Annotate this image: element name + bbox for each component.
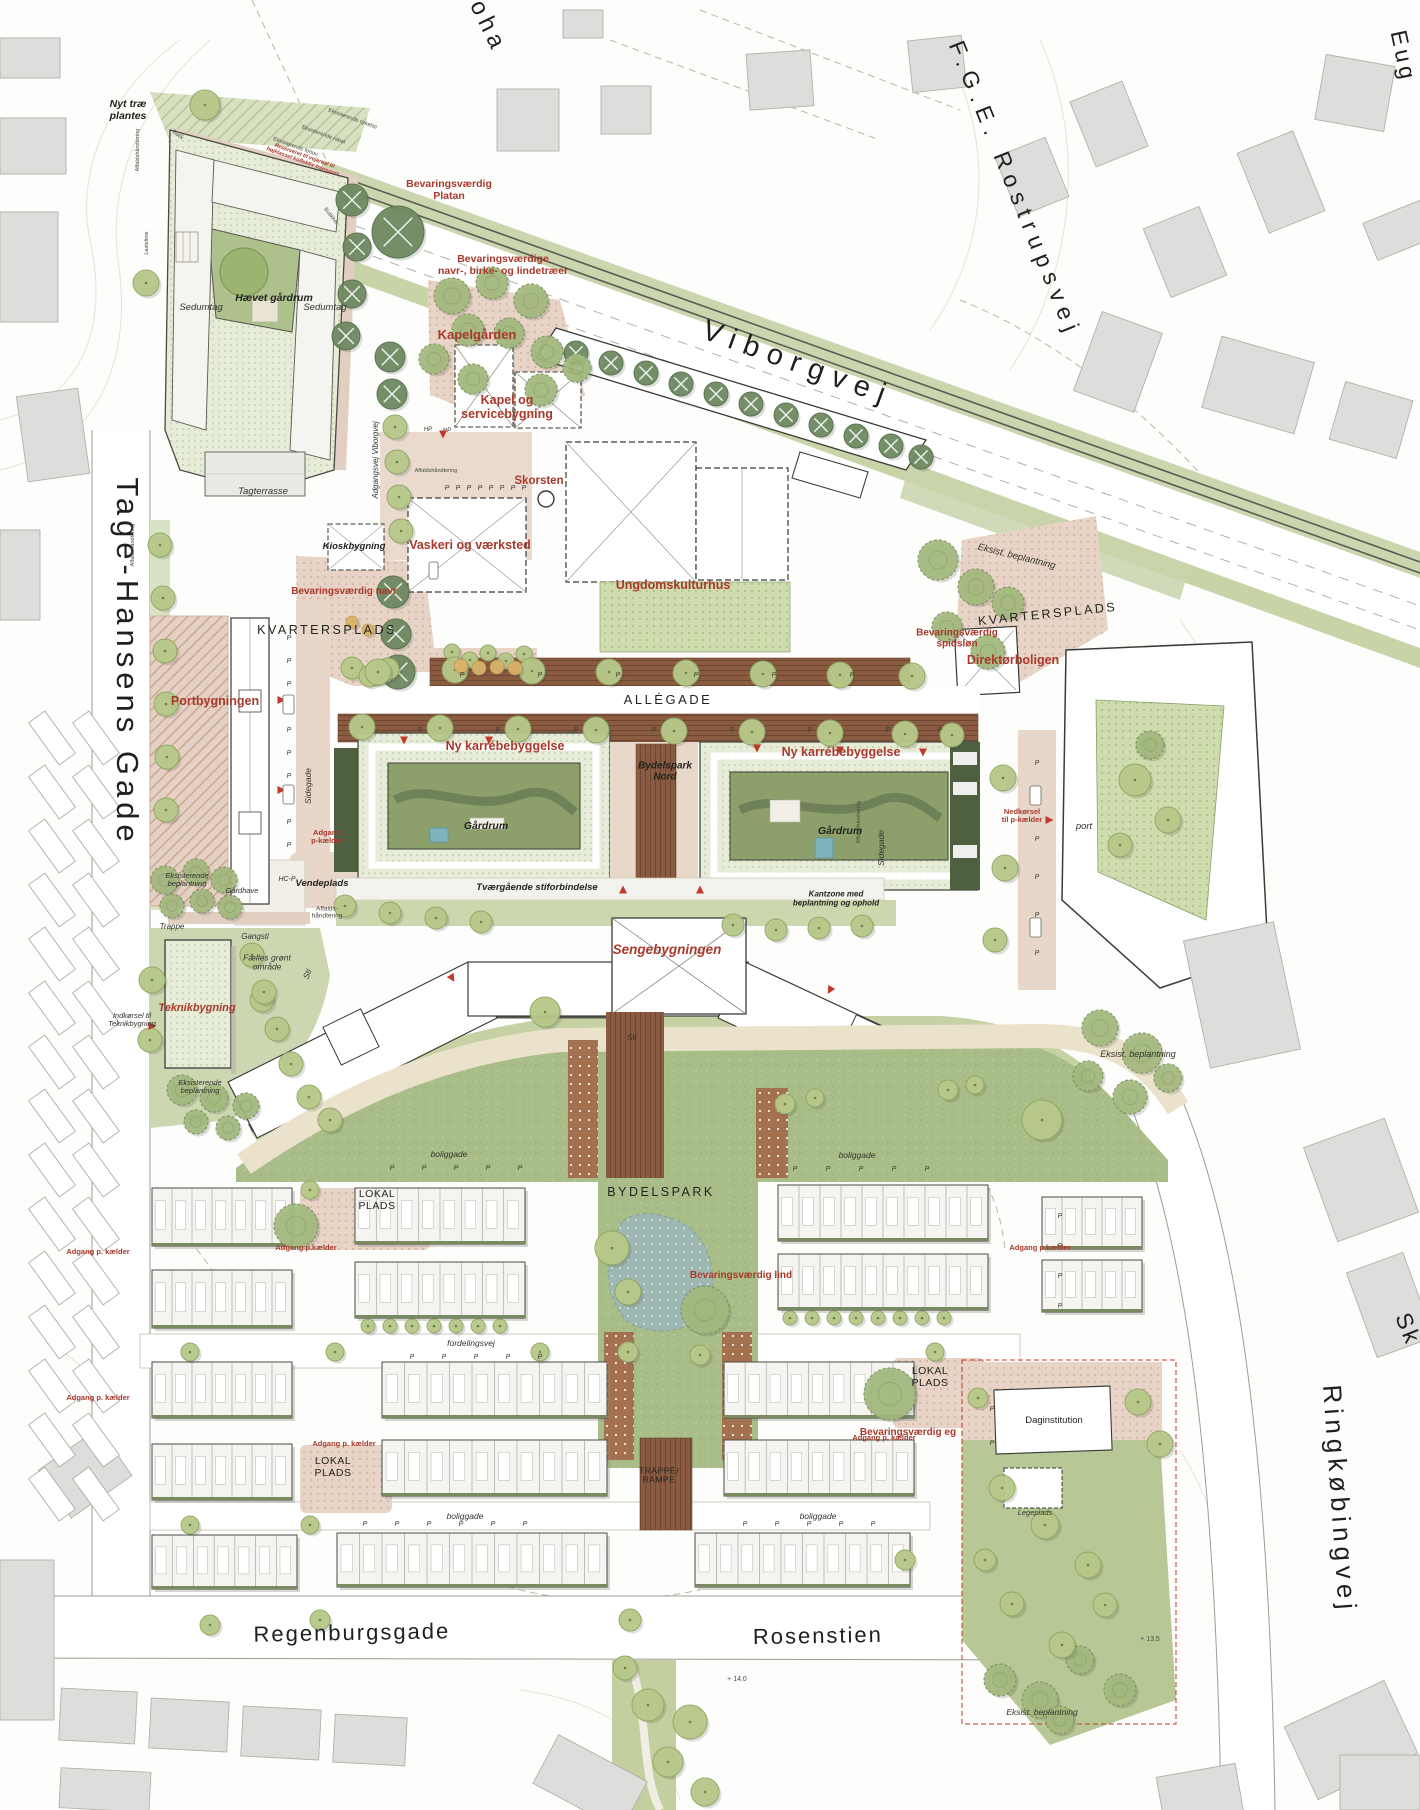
parking-p-mark: P xyxy=(925,1166,930,1173)
label-text-hc-p: HC-P xyxy=(278,876,295,883)
allotment-row xyxy=(29,927,76,981)
allotment-row xyxy=(29,765,76,819)
map-label-adgang-p-kaelder-5: Adgang p. kælder xyxy=(66,1393,129,1402)
car-icon xyxy=(429,562,438,579)
tvaergaaende-sti-path xyxy=(336,878,884,900)
parking-p-mark: P xyxy=(850,672,855,679)
parking-p-mark: P xyxy=(730,727,735,734)
map-label-adgang-p-kaelder-6: Adgang p. kælder xyxy=(312,1439,375,1448)
label-text-affaldshaandtering-5: Affaldshåndtering xyxy=(855,801,862,844)
map-label-affaldshaandtering-5: Affaldshåndtering xyxy=(855,801,862,844)
label-text-ungdomskulturhus: Ungdomskulturhus xyxy=(616,578,731,592)
karre-east-pool xyxy=(815,838,833,858)
rowhouse-block xyxy=(152,1444,295,1503)
map-label-indkoersel-teknikbygning: Indkørsel tilTeknikbygning xyxy=(108,1011,157,1028)
parking-p-mark: P xyxy=(839,1521,844,1528)
context-building xyxy=(497,89,559,151)
allotment-row xyxy=(29,1305,76,1359)
rowhouse-block xyxy=(337,1533,610,1590)
label-text-adgang-p-kaelder-5: Adgang p. kælder xyxy=(66,1393,129,1402)
rowhouse-block xyxy=(152,1270,295,1331)
map-label-eksist-beplantning-5: Eksist. beplantning xyxy=(1006,1707,1078,1717)
allotment-row xyxy=(29,1035,76,1089)
map-label-hc-p: HC-P xyxy=(278,876,295,883)
map-label-ny-karrebebyggelse-vest: Ny karrébebyggelse xyxy=(446,739,565,753)
map-label-eksisterende-beplantning-2: Eksisterendebeplantning xyxy=(165,871,208,888)
entry-arrow-icon xyxy=(824,985,835,996)
site-plan-canvas: PPPPPPPPPPPPPPPPPPPPPPPPPPPPPPPPPPPPPPPP… xyxy=(0,0,1420,1810)
rowhouse-block xyxy=(778,1185,991,1244)
map-label-gaardrum-vest: Gårdrum xyxy=(464,820,508,832)
context-building xyxy=(0,118,66,174)
label-text-port: port xyxy=(1075,821,1093,832)
label-text-portbygningen: Portbygningen xyxy=(171,694,259,708)
parking-p-mark: P xyxy=(1035,874,1040,881)
context-building xyxy=(1070,81,1148,167)
map-label-trappe-rampe: TRAPPE/RAMPE xyxy=(639,1465,679,1484)
allotment-row xyxy=(29,1251,76,1305)
parking-p-mark: P xyxy=(807,1521,812,1528)
label-text-ny-karrebebyggelse-oest: Ny karrébebyggelse xyxy=(782,745,901,759)
map-label-sedumtag-1: Sedumtag xyxy=(179,302,223,313)
map-label-trappe: Trappe xyxy=(160,922,185,931)
map-label-bevaringsvaerdige-traeer: Bevaringsværdigenavr-, birke- og lindetr… xyxy=(438,253,568,277)
ungdomshus-garden xyxy=(600,582,790,652)
parking-p-mark: P xyxy=(363,1521,368,1528)
parking-p-mark: P xyxy=(523,1521,528,1528)
label-text-indkoersel-teknikbygning: Indkørsel tilTeknikbygning xyxy=(108,1011,157,1028)
map-label-bevaringsvaerdig-lind: Bevaringsværdig lind xyxy=(690,1270,792,1281)
new-tree-icon xyxy=(471,1319,488,1336)
parking-p-mark: P xyxy=(1035,950,1040,957)
label-text-ny-karrebebyggelse-vest: Ny karrébebyggelse xyxy=(446,739,565,753)
label-text-gaardhave: Gårdhave xyxy=(226,886,259,895)
new-tree-icon xyxy=(427,1319,444,1336)
map-label-fordelingsvej: fordelingsvej xyxy=(447,1338,496,1348)
new-tree-icon xyxy=(915,1311,932,1328)
allotment-row xyxy=(29,873,76,927)
new-tree-icon xyxy=(449,1319,466,1336)
parking-p-mark: P xyxy=(454,1165,459,1172)
label-text-boliggade-4: boliggade xyxy=(800,1511,837,1521)
label-text-adgang-p-kaelder-4: Adgang p.kælder xyxy=(1009,1243,1070,1252)
rowhouse-block xyxy=(152,1362,295,1421)
map-label-tagterrasse: Tagterrasse xyxy=(238,486,288,497)
map-label-nedkoersel-p-kaelder: Nedkørseltil p-kælder xyxy=(1002,807,1043,824)
label-text-skorsten: Skorsten xyxy=(514,475,563,487)
label-text-adgang-p-kaelder-7: Adgang p. kælder xyxy=(852,1433,915,1442)
parking-p-mark: P xyxy=(538,672,543,679)
karre-west-parking xyxy=(334,748,358,872)
karre-west-building xyxy=(334,733,610,879)
car-icon xyxy=(1030,918,1041,937)
label-text-allegade: ALLÉGADE xyxy=(624,692,713,707)
rowhouse-block xyxy=(355,1262,528,1321)
parking-p-mark: P xyxy=(287,842,292,849)
preserved-tree-icon xyxy=(377,379,410,412)
label-text-sedumtag-1: Sedumtag xyxy=(179,302,223,313)
parking-p-mark: P xyxy=(467,485,472,492)
label-text-bevaringsvaerdig-lind: Bevaringsværdig lind xyxy=(690,1270,792,1281)
new-tree-icon xyxy=(937,1311,954,1328)
map-label-port: port xyxy=(1075,821,1093,832)
label-text-trappe: Trappe xyxy=(160,922,185,931)
label-text-fordelingsvej: fordelingsvej xyxy=(447,1338,496,1348)
rowhouse-block xyxy=(778,1254,991,1313)
label-text-legeplads: Legeplads xyxy=(1018,1508,1053,1517)
map-label-eksist-beplantning-4: Eksist. beplantning xyxy=(1100,1049,1176,1059)
label-text-kote-135: + 13.5 xyxy=(1140,1636,1160,1643)
new-tree-icon xyxy=(383,1319,400,1336)
parking-p-mark: P xyxy=(395,1521,400,1528)
rowhouse-block xyxy=(382,1362,610,1421)
parking-p-mark: P xyxy=(410,1354,415,1361)
map-label-boliggade-3: boliggade xyxy=(447,1511,484,1521)
label-text-lokal-plads-3: LOKALPLADS xyxy=(912,1365,949,1389)
label-text-sidegade-vest: Sidegade xyxy=(303,768,313,804)
allotment-row xyxy=(29,1197,76,1251)
map-label-daginstitution: Daginstitution xyxy=(1025,1415,1083,1426)
map-label-legeplads: Legeplads xyxy=(1018,1508,1053,1517)
context-building xyxy=(1329,382,1413,459)
map-label-ungdomskulturhus: Ungdomskulturhus xyxy=(616,578,731,592)
new-tree-icon xyxy=(990,765,1019,794)
parking-p-mark: P xyxy=(518,1165,523,1172)
parking-p-mark: P xyxy=(694,672,699,679)
parking-p-mark: P xyxy=(422,1165,427,1172)
label-text-sengebygningen: Sengebygningen xyxy=(613,942,722,957)
map-label-kapelgaarden: Kapelgården xyxy=(438,327,517,342)
map-label-sengebygningen: Sengebygningen xyxy=(613,942,722,957)
map-label-ny-karrebebyggelse-oest: Ny karrébebyggelse xyxy=(782,745,901,759)
handicap-parking-mark: HP xyxy=(424,427,432,433)
map-label-tvaergaaende-stiforbindelse: Tværgående stiforbindelse xyxy=(476,882,598,893)
allotment-row xyxy=(29,981,76,1035)
parking-p-mark: P xyxy=(990,1406,995,1413)
waste-containers xyxy=(176,232,198,262)
context-building xyxy=(1156,1763,1243,1810)
context-building xyxy=(1340,1755,1420,1810)
context-building xyxy=(149,1698,230,1752)
allotment-row xyxy=(29,711,76,765)
label-text-joha: Joha xyxy=(457,0,513,57)
label-text-adgang-p-kaelder-1: Adgangp-kælder xyxy=(311,828,343,845)
parking-p-mark: P xyxy=(1058,1213,1063,1220)
map-label-direktoerboligen: Direktørboligen xyxy=(967,653,1059,667)
parking-p-mark: P xyxy=(772,672,777,679)
label-text-rosenstien: Rosenstien xyxy=(753,1622,883,1649)
map-label-adgang-p-kaelder-3: Adgang p.kælder xyxy=(275,1243,336,1252)
label-text-kapelgaarden: Kapelgården xyxy=(438,327,517,342)
map-label-sidegade-oest: Sidegade xyxy=(876,830,886,866)
karre-east-building xyxy=(700,742,980,890)
map-label-kioskbygning: Kioskbygning xyxy=(323,541,386,552)
fluffy-tree-icon xyxy=(216,1116,243,1143)
rowhouse-block xyxy=(724,1440,917,1499)
rowhouse-block xyxy=(695,1533,913,1590)
parking-p-mark: P xyxy=(474,1354,479,1361)
label-text-kote-140: + 14.0 xyxy=(727,1676,747,1683)
parking-p-mark: P xyxy=(616,672,621,679)
new-tree-icon xyxy=(783,1311,800,1328)
parking-p-mark: P xyxy=(1035,760,1040,767)
parking-p-mark: P xyxy=(652,727,657,734)
parking-p-mark: P xyxy=(427,1521,432,1528)
map-label-adgang-p-kaelder-2: Adgang p. kælder xyxy=(66,1247,129,1256)
rowhouse-block xyxy=(382,1440,610,1499)
new-tree-icon xyxy=(827,1311,844,1328)
map-label-affaldshaandtering-3: Affaldshåndtering xyxy=(415,467,458,474)
parking-p-mark: P xyxy=(442,1354,447,1361)
parking-p-mark: P xyxy=(574,727,579,734)
map-label-boliggade-1: boliggade xyxy=(431,1149,468,1159)
new-tree-icon xyxy=(361,1319,378,1336)
parking-p-mark: P xyxy=(287,773,292,780)
context-building xyxy=(241,1706,322,1760)
preserved-tree-icon xyxy=(375,342,408,375)
allotment-row xyxy=(29,1413,76,1467)
parking-p-mark: P xyxy=(478,485,483,492)
label-text-trappe-rampe: TRAPPE/RAMPE xyxy=(639,1465,679,1484)
label-text-teknikbygning: Teknikbygning xyxy=(158,1002,235,1014)
context-building xyxy=(0,530,40,620)
map-label-bevaringsvaerdig-navr: Bevaringsværdig navr xyxy=(291,586,397,597)
context-building xyxy=(1143,206,1226,297)
parking-p-mark: P xyxy=(886,727,891,734)
parking-p-mark: P xyxy=(489,485,494,492)
map-label-portbygningen: Portbygningen xyxy=(171,694,259,708)
new-tree-icon xyxy=(133,270,162,299)
label-text-bevaringsvaerdig-navr: Bevaringsværdig navr xyxy=(291,586,397,597)
context-building xyxy=(0,212,58,322)
map-label-allegade: ALLÉGADE xyxy=(624,692,713,707)
label-text-regenburgsgade: Regenburgsgade xyxy=(253,1618,450,1646)
context-building xyxy=(601,86,651,134)
map-label-skorsten: Skorsten xyxy=(514,475,563,487)
label-text-haevet-gaardrum: Hævet gårdrum xyxy=(235,292,313,304)
label-text-nyt-trae-plantes: Nyt træplantes xyxy=(109,98,147,122)
label-text-sidegade-oest: Sidegade xyxy=(876,830,886,866)
label-text-kvartersplads-vest: KVARTERSPLADS xyxy=(257,623,397,637)
parking-p-mark: P xyxy=(456,485,461,492)
label-text-gaardrum-vest: Gårdrum xyxy=(464,820,508,832)
map-label-sedumtag-2: Sedumtag xyxy=(303,302,347,313)
map-label-teknikbygning: Teknikbygning xyxy=(158,1002,235,1014)
label-text-tage-hansens-gade: Tage-Hansens Gade xyxy=(110,477,145,846)
label-text-affaldshaandtering-3: Affaldshåndtering xyxy=(415,467,458,474)
label-text-eksist-beplantning-5: Eksist. beplantning xyxy=(1006,1707,1078,1717)
new-tree-icon xyxy=(849,1311,866,1328)
allotment-row xyxy=(29,1143,76,1197)
new-tree-icon xyxy=(805,1311,822,1328)
map-label-adgang-p-kaelder-4: Adgang p.kælder xyxy=(1009,1243,1070,1252)
map-label-nyt-trae-plantes: Nyt træplantes xyxy=(109,98,147,122)
label-text-ringkoebingvej: Ringkøbingvej xyxy=(1317,1384,1363,1615)
label-text-boliggade-2: boliggade xyxy=(839,1150,876,1160)
new-tree-icon xyxy=(871,1311,888,1328)
label-text-kioskbygning: Kioskbygning xyxy=(323,541,386,552)
context-building xyxy=(1363,190,1420,261)
label-text-bydelspark: BYDELSPARK xyxy=(607,1185,714,1199)
parking-p-mark: P xyxy=(500,485,505,492)
new-tree-icon xyxy=(893,1311,910,1328)
map-label-affaldshaandtering-1: Affaldshåndtering xyxy=(134,129,141,172)
map-label-eksisterende-beplantning-3: Eksisterendebeplantning xyxy=(178,1078,221,1095)
new-tree-icon xyxy=(983,928,1010,955)
parking-p-mark: P xyxy=(743,1521,748,1528)
parking-p-mark: P xyxy=(287,819,292,826)
map-label-adgangsvej-viborgvej: Adgangsvej Viborgvej xyxy=(371,421,380,499)
context-building xyxy=(59,1688,138,1744)
map-label-haevet-gaardrum: Hævet gårdrum xyxy=(235,292,313,304)
parking-p-mark: P xyxy=(892,1166,897,1173)
context-building xyxy=(1202,336,1315,434)
label-text-tvaergaaende-stiforbindelse: Tværgående stiforbindelse xyxy=(476,882,598,893)
map-label-lokal-plads-2: LOKALPLADS xyxy=(315,1455,352,1479)
parking-p-mark: P xyxy=(775,1521,780,1528)
parking-p-mark: P xyxy=(990,1440,995,1447)
label-text-lastelinie: Lastelinie xyxy=(144,231,150,254)
context-building xyxy=(1183,922,1300,1068)
map-label-boliggade-4: boliggade xyxy=(800,1511,837,1521)
label-text-adgang-p-kaelder-3: Adgang p.kælder xyxy=(275,1243,336,1252)
map-label-gaardhave: Gårdhave xyxy=(226,886,259,895)
label-text-eksisterende-beplantning-3: Eksisterendebeplantning xyxy=(178,1078,221,1095)
parking-p-mark: P xyxy=(459,1521,464,1528)
map-label-sidegade-vest: Sidegade xyxy=(303,768,313,804)
label-text-tagterrasse: Tagterrasse xyxy=(238,486,288,497)
parking-p-mark: P xyxy=(1035,836,1040,843)
parking-p-mark: P xyxy=(1058,1303,1063,1310)
parking-p-mark: P xyxy=(460,672,465,679)
context-building xyxy=(333,1714,407,1766)
label-text-adgang-p-kaelder-6: Adgang p. kælder xyxy=(312,1439,375,1448)
karre-west-courtyard xyxy=(388,763,580,849)
parking-p-mark: P xyxy=(496,727,501,734)
map-label-joha: Joha xyxy=(457,0,513,57)
parking-p-mark: P xyxy=(287,658,292,665)
parking-p-mark: P xyxy=(287,681,292,688)
parking-p-mark: P xyxy=(538,1354,543,1361)
new-tree-icon xyxy=(691,1778,722,1809)
map-label-adgang-p-kaelder-1: Adgangp-kælder xyxy=(311,828,343,845)
label-text-daginstitution: Daginstitution xyxy=(1025,1415,1083,1426)
context-building xyxy=(1237,131,1325,233)
parking-p-mark: P xyxy=(793,1166,798,1173)
parking-p-mark: P xyxy=(390,1165,395,1172)
fluffy-tree-icon xyxy=(918,540,961,583)
context-building xyxy=(1074,312,1163,413)
label-text-sedumtag-2: Sedumtag xyxy=(303,302,347,313)
label-text-gangsti: Gangsti xyxy=(241,932,269,941)
label-text-adgang-p-kaelder-2: Adgang p. kælder xyxy=(66,1247,129,1256)
parking-p-mark: P xyxy=(486,1165,491,1172)
rowhouse-block xyxy=(152,1535,300,1592)
parking-p-mark: P xyxy=(491,1521,496,1528)
new-tree-icon xyxy=(405,1319,422,1336)
map-label-lokal-plads-1: LOKALPLADS xyxy=(359,1188,396,1212)
map-label-boliggade-2: boliggade xyxy=(839,1150,876,1160)
karre-west-pool xyxy=(430,828,448,842)
map-label-ringkoebingvej: Ringkøbingvej xyxy=(1317,1384,1363,1615)
context-building xyxy=(59,1768,151,1810)
car-icon xyxy=(283,785,294,804)
label-text-boliggade-3: boliggade xyxy=(447,1511,484,1521)
parking-p-mark: P xyxy=(808,727,813,734)
parking-p-mark: P xyxy=(871,1521,876,1528)
label-text-affaldshaandtering-1: Affaldshåndtering xyxy=(134,129,141,172)
map-label-kote-135: + 13.5 xyxy=(1140,1636,1160,1643)
map-label-tage-hansens-gade: Tage-Hansens Gade xyxy=(110,477,145,846)
label-text-bevaringsvaerdige-traeer: Bevaringsværdigenavr-, birke- og lindetr… xyxy=(438,253,568,277)
karre-east-courtyard xyxy=(730,772,948,860)
map-label-rosenstien: Rosenstien xyxy=(753,1622,883,1649)
new-tree-icon xyxy=(493,1319,510,1336)
context-building xyxy=(0,1560,54,1720)
skorsten-chimney xyxy=(538,491,554,507)
context-building xyxy=(1315,54,1395,131)
car-icon xyxy=(283,695,294,714)
label-text-vendeplads: Vendeplads xyxy=(296,878,349,889)
parking-p-mark: P xyxy=(1058,1273,1063,1280)
map-label-bydelspark: BYDELSPARK xyxy=(607,1185,714,1199)
rowhouse-block xyxy=(152,1188,295,1249)
parking-p-mark: P xyxy=(938,727,943,734)
parking-p-mark: P xyxy=(859,1166,864,1173)
map-label-lastelinie: Lastelinie xyxy=(144,231,150,254)
label-text-vaskeri-og-vaerksted: Vaskeri og værksted xyxy=(409,538,531,552)
map-label-vendeplads: Vendeplads xyxy=(296,878,349,889)
park-path-west xyxy=(568,1040,598,1178)
parking-p-mark: P xyxy=(287,750,292,757)
car-icon xyxy=(1030,786,1041,805)
parking-p-mark: P xyxy=(506,1354,511,1361)
new-tree-icon xyxy=(673,1705,710,1742)
map-label-regenburgsgade: Regenburgsgade xyxy=(253,1618,450,1646)
label-text-boliggade-1: boliggade xyxy=(431,1149,468,1159)
label-text-eksisterende-beplantning-2: Eksisterendebeplantning xyxy=(165,871,208,888)
context-building xyxy=(0,38,60,78)
allotment-row xyxy=(29,819,76,873)
map-label-gangsti: Gangsti xyxy=(241,932,269,941)
parking-p-mark: P xyxy=(445,485,450,492)
label-text-adgangsvej-viborgvej: Adgangsvej Viborgvej xyxy=(371,421,380,499)
parking-p-mark: P xyxy=(826,1166,831,1173)
parking-p-mark: P xyxy=(287,727,292,734)
map-label-kvartersplads-vest: KVARTERSPLADS xyxy=(257,623,397,637)
map-label-adgang-p-kaelder-7: Adgang p. kælder xyxy=(852,1433,915,1442)
label-text-eksist-beplantning-4: Eksist. beplantning xyxy=(1100,1049,1176,1059)
context-building xyxy=(16,388,89,482)
label-text-lokal-plads-2: LOKALPLADS xyxy=(315,1455,352,1479)
context-building xyxy=(1303,1118,1418,1241)
map-label-lokal-plads-3: LOKALPLADS xyxy=(912,1365,949,1389)
context-building xyxy=(746,50,814,110)
new-tree-icon xyxy=(992,855,1021,884)
site-plan-svg: PPPPPPPPPPPPPPPPPPPPPPPPPPPPPPPPPPPPPPPP… xyxy=(0,0,1420,1810)
map-label-kote-140: + 14.0 xyxy=(727,1676,747,1683)
map-label-affaldshaandtering-2: Affaldshåndtering xyxy=(129,524,136,567)
allotment-row xyxy=(29,1359,76,1413)
label-text-direktoerboligen: Direktørboligen xyxy=(967,653,1059,667)
label-text-nedkoersel-p-kaelder: Nedkørseltil p-kælder xyxy=(1002,807,1043,824)
allotment-row xyxy=(29,1089,76,1143)
context-building xyxy=(563,10,603,38)
label-text-affaldshaandtering-2: Affaldshåndtering xyxy=(129,524,136,567)
ungdomskulturhus-building xyxy=(566,442,790,652)
map-label-vaskeri-og-vaerksted: Vaskeri og værksted xyxy=(409,538,531,552)
label-text-lokal-plads-1: LOKALPLADS xyxy=(359,1188,396,1212)
